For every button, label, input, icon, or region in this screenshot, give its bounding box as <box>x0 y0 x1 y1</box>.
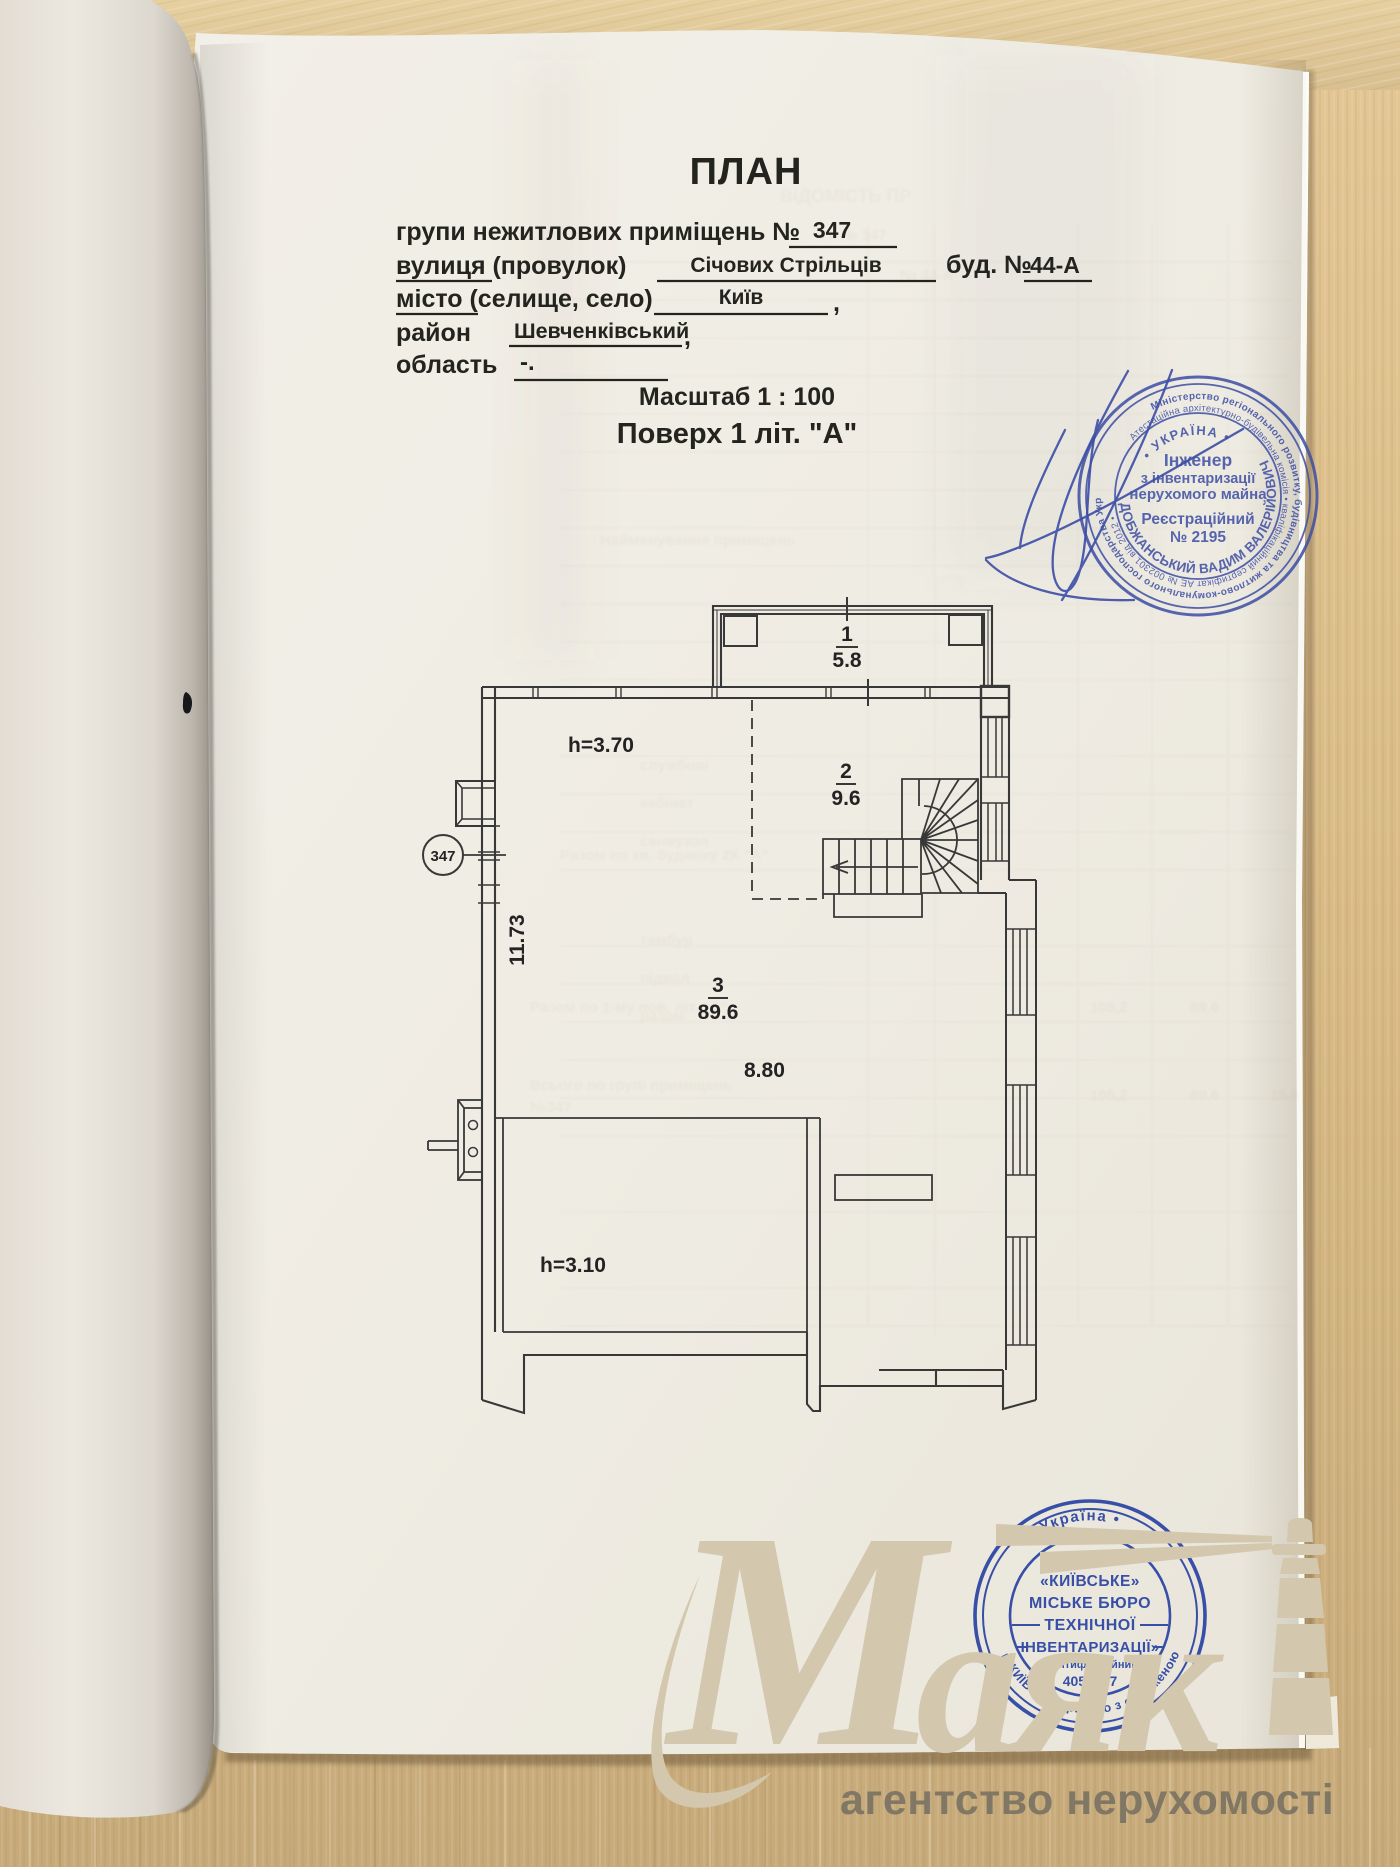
svg-text:11.73: 11.73 <box>506 914 529 965</box>
svg-text:групи нежитлових приміщень №: групи нежитлових приміщень № <box>396 218 800 246</box>
svg-text:Реєстраційний: Реєстраційний <box>1141 511 1254 528</box>
svg-text:кабінет: кабінет <box>640 795 694 812</box>
svg-text:5.8: 5.8 <box>832 649 862 672</box>
svg-text:аяк: аяк <box>916 1565 1224 1797</box>
svg-text:h=3.70: h=3.70 <box>568 734 634 757</box>
svg-text:89.6: 89.6 <box>698 1001 739 1024</box>
svg-text:89,6: 89,6 <box>1190 1087 1219 1104</box>
svg-text:тамбур: тамбур <box>640 932 693 949</box>
svg-text:347: 347 <box>430 848 455 865</box>
svg-text:h=3.10: h=3.10 <box>540 1254 606 1277</box>
svg-text:підвал: підвал <box>640 970 690 987</box>
svg-text:вулиця (провулок): вулиця (провулок) <box>396 252 626 280</box>
svg-text:буд. №: буд. № <box>946 251 1032 279</box>
svg-text:105,2: 105,2 <box>1090 1087 1128 1104</box>
svg-text:Найменування приміщень: Найменування приміщень <box>600 532 796 549</box>
svg-text:Шевченківський: Шевченківський <box>514 319 689 343</box>
svg-text:№347: №347 <box>530 1099 572 1116</box>
svg-text:місто (селище, село): місто (селище, село) <box>396 285 653 313</box>
svg-text:-.: -. <box>520 349 535 376</box>
svg-text:агентство нерухомості: агентство нерухомості <box>840 1776 1334 1824</box>
svg-text:Київ: Київ <box>719 286 764 309</box>
svg-text:,: , <box>684 323 691 351</box>
svg-text:ПЛАН: ПЛАН <box>690 151 803 193</box>
svg-text:,: , <box>833 289 840 317</box>
svg-text:Січових Стрільців: Січових Стрільців <box>690 254 881 277</box>
svg-text:область: область <box>396 351 497 379</box>
svg-text:Разом по кв. будинку 2К "А": Разом по кв. будинку 2К "А" <box>560 847 769 864</box>
svg-text:Інженер: Інженер <box>1164 450 1232 470</box>
svg-text:1: 1 <box>841 623 853 646</box>
svg-text:з інвентаризації: з інвентаризації <box>1141 471 1257 487</box>
svg-text:2: 2 <box>840 760 852 783</box>
svg-text:службові: службові <box>640 757 709 774</box>
svg-text:№ 2195: № 2195 <box>1170 529 1226 546</box>
svg-text:район: район <box>396 319 471 347</box>
svg-text:Масштаб 1 : 100: Масштаб 1 : 100 <box>639 383 835 411</box>
svg-text:М: М <box>663 1469 954 1812</box>
svg-text:347: 347 <box>813 217 851 243</box>
svg-text:Поверх 1 літ. "А": Поверх 1 літ. "А" <box>617 418 858 450</box>
svg-text:нерухомого майна: нерухомого майна <box>1129 486 1267 503</box>
svg-text:89,6: 89,6 <box>1190 999 1219 1016</box>
svg-text:Всього по групі приміщень: Всього по групі приміщень <box>530 1077 732 1094</box>
svg-text:105,2: 105,2 <box>1090 999 1128 1016</box>
svg-text:9.6: 9.6 <box>831 787 860 810</box>
svg-text:3: 3 <box>712 974 724 997</box>
svg-text:15,6: 15,6 <box>1270 1087 1299 1104</box>
svg-text:8.80: 8.80 <box>744 1059 785 1082</box>
svg-text:44-А: 44-А <box>1030 252 1080 278</box>
